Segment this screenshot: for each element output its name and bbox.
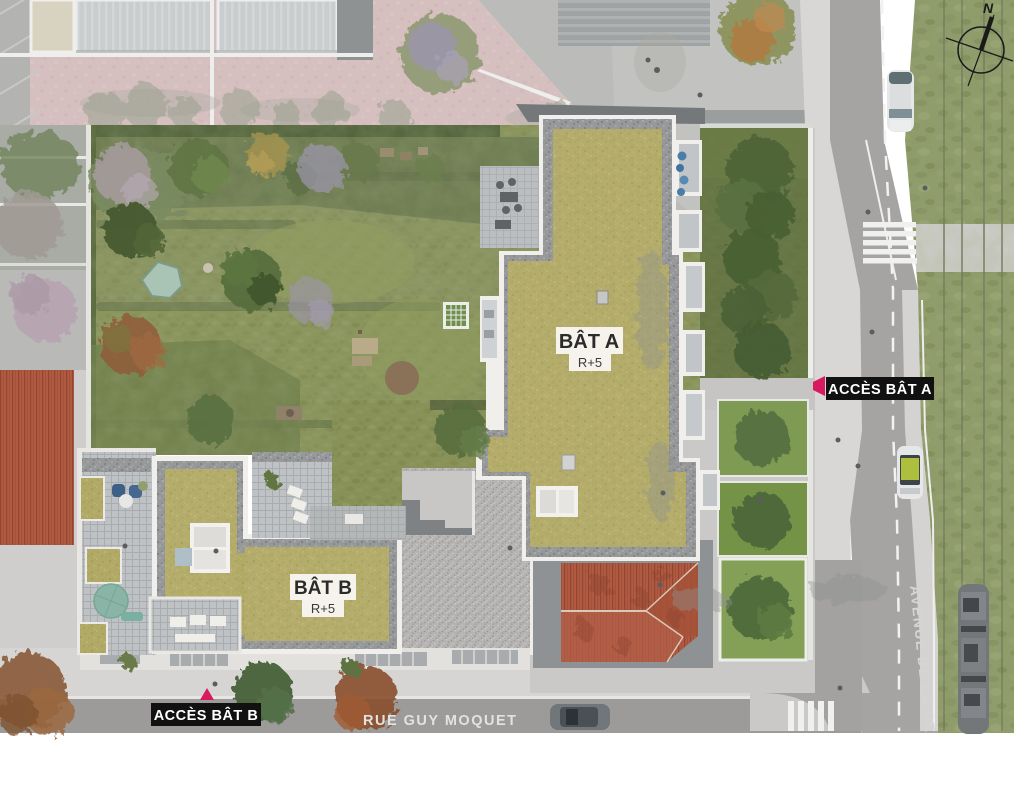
svg-text:ACCÈS BÂT A: ACCÈS BÂT A (828, 380, 932, 398)
svg-text:ACCÈS BÂT B: ACCÈS BÂT B (154, 706, 259, 724)
svg-text:BÂT B: BÂT B (294, 577, 352, 599)
svg-text:N: N (983, 0, 994, 16)
svg-text:BÂT A: BÂT A (559, 329, 619, 353)
svg-text:R+5: R+5 (311, 601, 335, 616)
svg-text:RUE GUY MOQUET: RUE GUY MOQUET (363, 713, 517, 729)
svg-text:R+5: R+5 (578, 355, 602, 370)
